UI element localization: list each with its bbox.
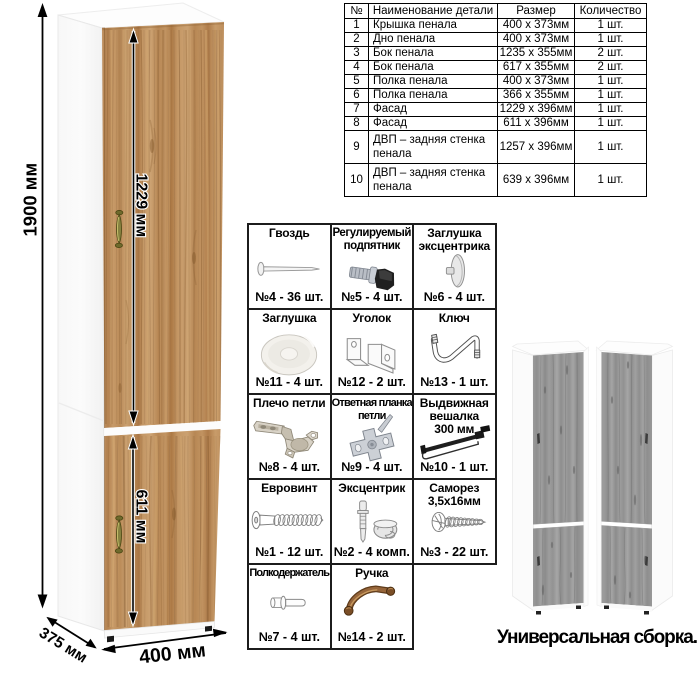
svg-text:1229 мм: 1229 мм	[133, 174, 150, 238]
svg-text:375 мм: 375 мм	[36, 624, 90, 666]
svg-text:1900 мм: 1900 мм	[20, 163, 41, 237]
svg-text:611 мм: 611 мм	[133, 490, 150, 544]
